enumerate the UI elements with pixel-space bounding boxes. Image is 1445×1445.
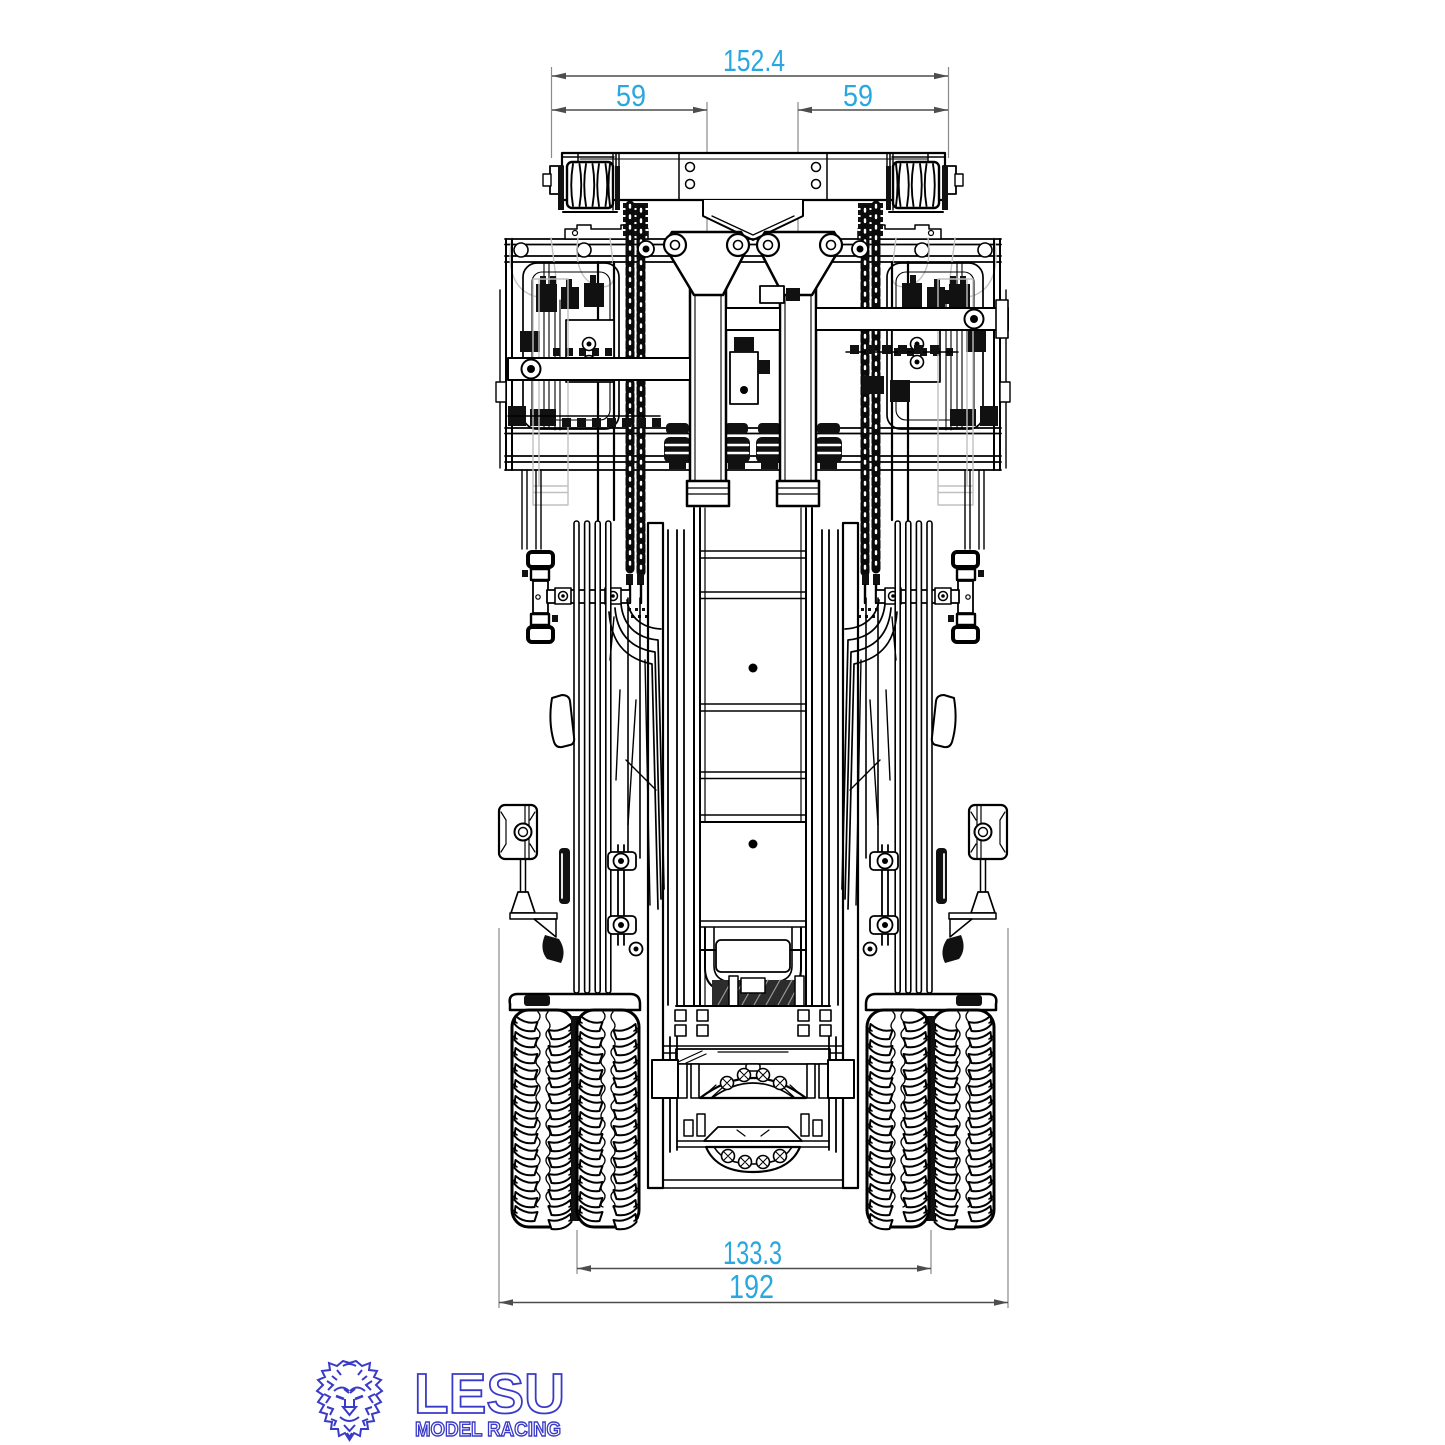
svg-text:133.3: 133.3 [723,1235,782,1271]
svg-text:192: 192 [729,1268,774,1305]
svg-text:MODEL RACING: MODEL RACING [415,1419,561,1441]
svg-text:LESU: LESU [414,1362,565,1426]
svg-text:59: 59 [616,78,646,113]
svg-text:152.4: 152.4 [723,43,785,78]
svg-text:59: 59 [843,78,873,113]
